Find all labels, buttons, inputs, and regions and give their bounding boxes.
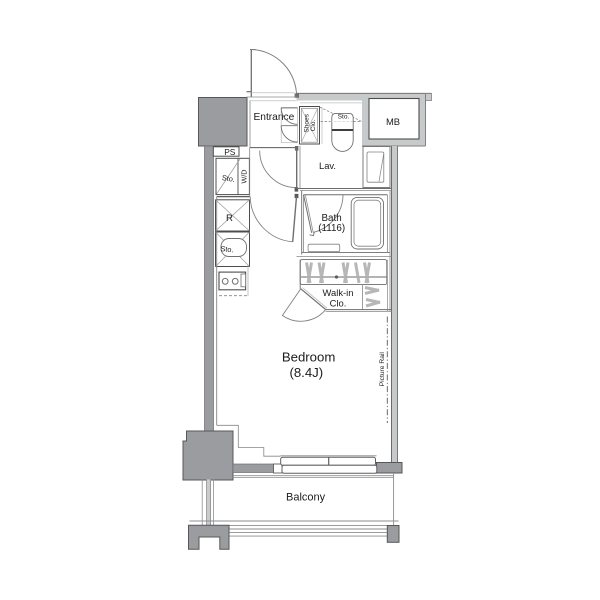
svg-text:MB: MB [386, 116, 400, 127]
svg-text:Clo.: Clo. [330, 298, 347, 309]
svg-text:Balcony: Balcony [286, 492, 326, 504]
svg-text:Picture Rail: Picture Rail [379, 352, 386, 387]
svg-text:W/D: W/D [239, 170, 248, 184]
svg-text:PS: PS [224, 147, 236, 157]
svg-text:Lav.: Lav. [319, 160, 336, 171]
svg-text:Bedroom: Bedroom [282, 349, 336, 364]
svg-text:Sto.: Sto. [221, 173, 235, 184]
svg-text:R: R [226, 213, 233, 224]
svg-text:Walk-in: Walk-in [323, 287, 354, 298]
svg-text:Clo.: Clo. [310, 119, 317, 131]
svg-text:Sto.: Sto. [220, 244, 234, 254]
svg-text:(8.4J): (8.4J) [289, 365, 323, 380]
svg-text:Sto.: Sto. [338, 114, 350, 121]
svg-text:(1116): (1116) [318, 223, 345, 234]
